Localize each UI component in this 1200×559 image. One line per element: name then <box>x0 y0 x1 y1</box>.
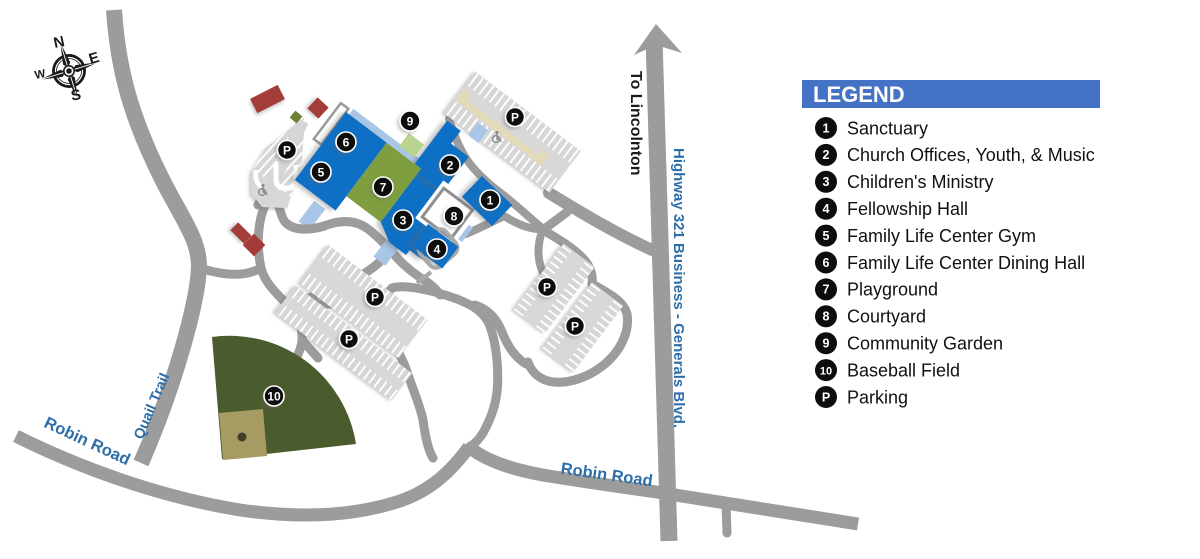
svg-text:9: 9 <box>407 114 414 128</box>
svg-text:7: 7 <box>380 180 387 194</box>
svg-text:10: 10 <box>820 365 832 377</box>
svg-text:3: 3 <box>400 213 407 227</box>
svg-text:4: 4 <box>823 202 830 216</box>
svg-text:Church Offices, Youth, & Music: Church Offices, Youth, & Music <box>847 145 1095 165</box>
svg-text:3: 3 <box>823 175 830 189</box>
svg-text:7: 7 <box>823 283 830 297</box>
svg-text:Fellowship Hall: Fellowship Hall <box>847 199 968 219</box>
svg-text:Parking: Parking <box>847 387 908 407</box>
svg-text:Family Life Center Gym: Family Life Center Gym <box>847 226 1036 246</box>
svg-text:1: 1 <box>487 193 494 207</box>
svg-text:8: 8 <box>451 209 458 223</box>
svg-text:6: 6 <box>823 256 830 270</box>
svg-text:2: 2 <box>823 148 830 162</box>
svg-text:6: 6 <box>343 135 350 149</box>
svg-text:2: 2 <box>447 158 454 172</box>
svg-text:P: P <box>571 319 579 333</box>
svg-text:LEGEND: LEGEND <box>813 82 905 107</box>
svg-text:Playground: Playground <box>847 280 938 300</box>
svg-text:Baseball Field: Baseball Field <box>847 360 960 380</box>
svg-text:4: 4 <box>434 242 441 256</box>
svg-text:Courtyard: Courtyard <box>847 307 926 327</box>
svg-text:Children's Ministry: Children's Ministry <box>847 172 993 192</box>
svg-text:5: 5 <box>318 165 325 179</box>
svg-text:P: P <box>511 110 519 124</box>
svg-text:Family Life Center Dining Hall: Family Life Center Dining Hall <box>847 253 1085 273</box>
svg-text:8: 8 <box>823 310 830 324</box>
svg-text:Community Garden: Community Garden <box>847 334 1003 354</box>
svg-text:Highway 321 Business - General: Highway 321 Business - Generals Blvd. <box>670 148 687 428</box>
svg-text:P: P <box>822 390 830 404</box>
svg-text:5: 5 <box>823 229 830 243</box>
svg-text:Sanctuary: Sanctuary <box>847 118 928 138</box>
svg-text:10: 10 <box>267 389 281 403</box>
svg-text:P: P <box>543 280 551 294</box>
svg-text:9: 9 <box>823 337 830 351</box>
svg-text:P: P <box>345 332 353 346</box>
svg-text:P: P <box>283 143 291 157</box>
svg-text:1: 1 <box>823 121 830 135</box>
svg-text:P: P <box>371 290 379 304</box>
svg-text:To Lincolnton: To Lincolnton <box>627 71 644 176</box>
